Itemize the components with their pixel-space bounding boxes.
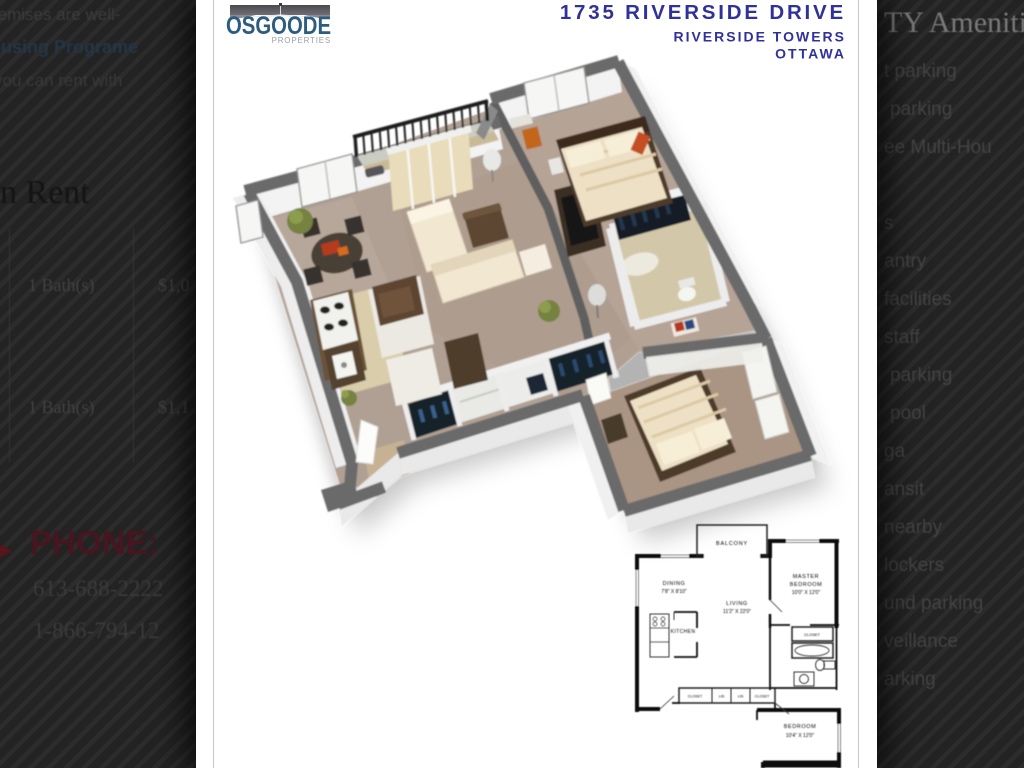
- svg-text:CLOSET: CLOSET: [688, 695, 703, 699]
- svg-text:BEDROOM: BEDROOM: [784, 724, 817, 730]
- svg-text:10'4" X 12'0": 10'4" X 12'0": [786, 733, 814, 739]
- svg-text:PROPERTIES: PROPERTIES: [272, 36, 331, 45]
- svg-text:10'0" X 12'0": 10'0" X 12'0": [792, 590, 820, 596]
- svg-text:LIN: LIN: [719, 695, 725, 699]
- svg-text:CLOSET: CLOSET: [755, 695, 770, 699]
- svg-text:11'2" X 22'0": 11'2" X 22'0": [723, 609, 751, 615]
- svg-text:OTTAWA: OTTAWA: [775, 46, 846, 62]
- svg-text:DINING: DINING: [663, 581, 686, 587]
- svg-text:1735 RIVERSIDE DRIVE: 1735 RIVERSIDE DRIVE: [560, 1, 846, 24]
- svg-text:RIVERSIDE TOWERS: RIVERSIDE TOWERS: [673, 29, 846, 45]
- svg-text:KITCHEN: KITCHEN: [671, 629, 696, 635]
- svg-text:MASTER: MASTER: [793, 574, 820, 580]
- svg-text:CLOSET: CLOSET: [804, 632, 821, 637]
- svg-text:BEDROOM: BEDROOM: [790, 582, 823, 588]
- svg-text:BALCONY: BALCONY: [716, 541, 748, 547]
- svg-text:LIN: LIN: [738, 695, 744, 699]
- svg-text:7'8" X 8'10": 7'8" X 8'10": [661, 589, 687, 595]
- svg-text:LIVING: LIVING: [726, 601, 748, 607]
